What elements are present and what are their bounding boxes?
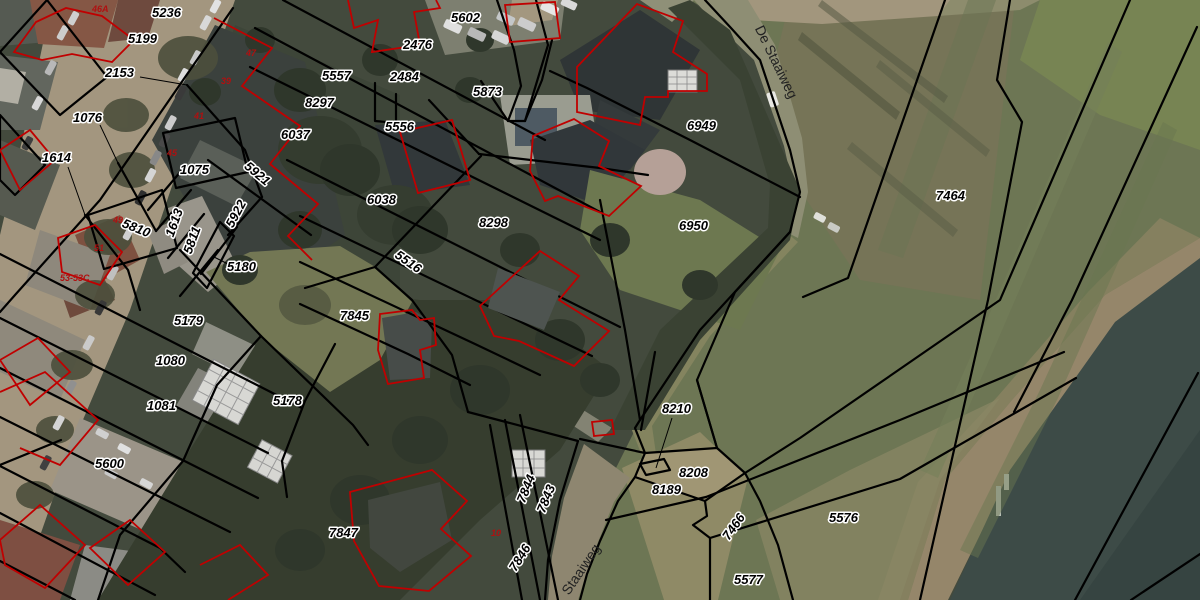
svg-text:5199: 5199 [128,31,158,46]
svg-text:2484: 2484 [389,69,420,84]
svg-text:49: 49 [112,215,123,225]
svg-text:10: 10 [491,528,501,538]
svg-text:5556: 5556 [385,119,415,134]
svg-text:47: 47 [245,48,257,58]
svg-text:5577: 5577 [734,572,764,587]
svg-text:8298: 8298 [479,215,509,230]
svg-text:1080: 1080 [156,353,186,368]
svg-text:2476: 2476 [402,37,433,52]
svg-text:5178: 5178 [273,393,303,408]
svg-text:7847: 7847 [329,525,359,540]
svg-text:41: 41 [193,111,204,121]
svg-text:5602: 5602 [451,10,481,25]
svg-text:53-53C: 53-53C [60,273,90,283]
svg-text:45: 45 [166,148,178,158]
svg-text:2153: 2153 [104,65,135,80]
svg-text:8297: 8297 [305,95,335,110]
svg-text:5557: 5557 [322,68,352,83]
svg-text:8210: 8210 [662,401,692,416]
svg-text:1081: 1081 [147,398,176,413]
svg-text:5236: 5236 [152,5,182,20]
svg-text:6037: 6037 [281,127,311,142]
svg-text:8208: 8208 [679,465,709,480]
svg-text:5873: 5873 [473,84,503,99]
svg-text:1076: 1076 [73,110,103,125]
svg-text:5576: 5576 [829,510,859,525]
svg-text:5179: 5179 [174,313,204,328]
svg-text:8189: 8189 [652,482,682,497]
svg-text:6949: 6949 [687,118,717,133]
svg-text:6038: 6038 [367,192,397,207]
svg-text:46A: 46A [91,4,109,14]
svg-text:5600: 5600 [95,456,125,471]
svg-text:5180: 5180 [227,259,257,274]
svg-text:7845: 7845 [340,308,370,323]
svg-text:51: 51 [94,243,104,253]
svg-text:6950: 6950 [679,218,709,233]
svg-text:39: 39 [221,76,231,86]
svg-text:1614: 1614 [42,150,72,165]
svg-text:1075: 1075 [180,162,210,177]
svg-text:7464: 7464 [936,188,966,203]
